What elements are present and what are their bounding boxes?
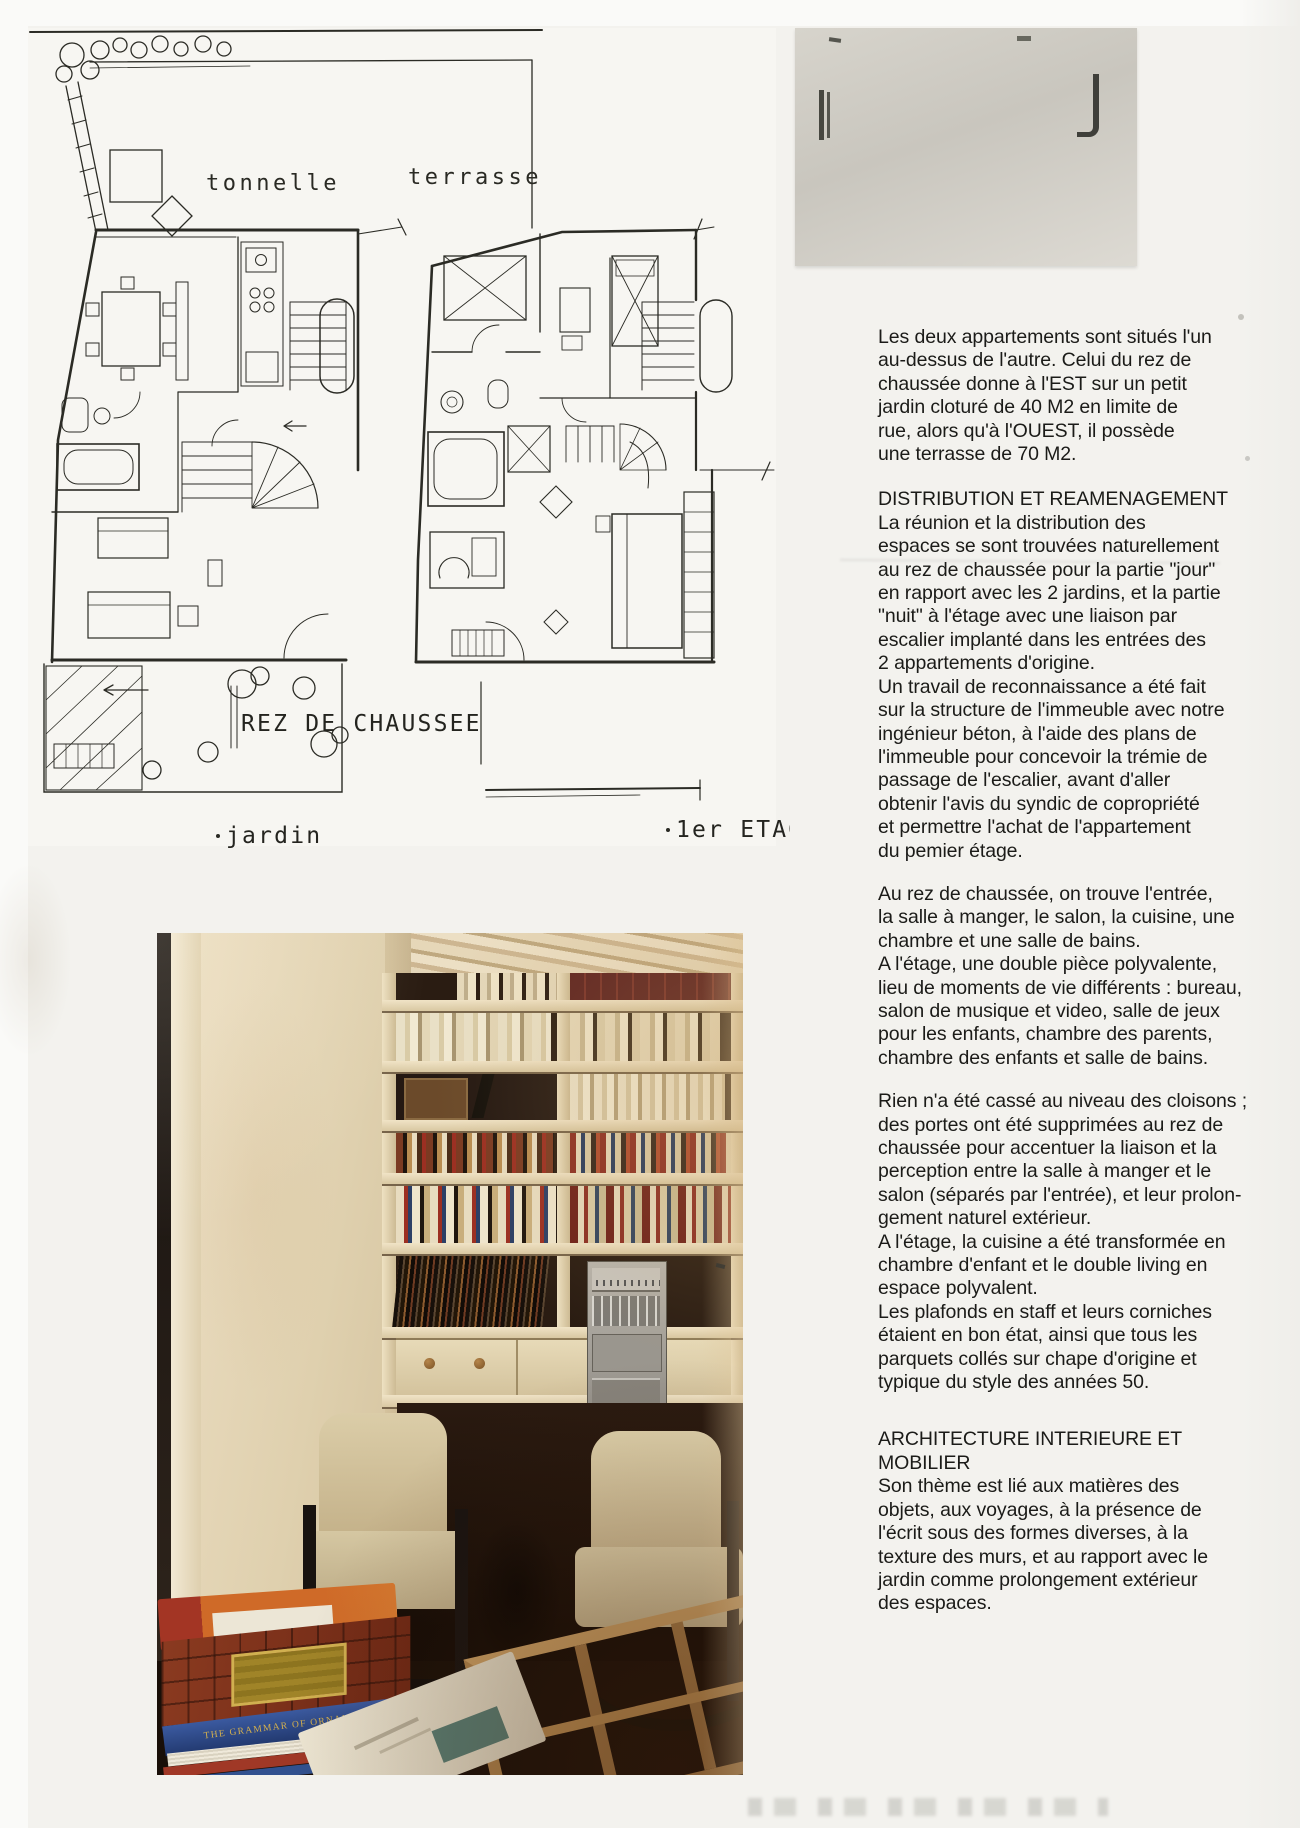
- ink-dot: [216, 834, 220, 838]
- article-text-column: Les deux appartements sont situés l'un a…: [878, 326, 1278, 1616]
- books-row: [396, 1011, 551, 1061]
- door-frame: [171, 933, 204, 1678]
- shelf-stile-right: [731, 973, 743, 1407]
- cupboard-seam: [516, 1340, 518, 1397]
- cupboard-knob: [424, 1358, 435, 1369]
- ink-dot: [666, 828, 670, 832]
- floor-plan-drawing: tonnelle terrasse REZ DE CHAUSSEE jardin…: [0, 0, 790, 860]
- article-section: Au rez de chaussée, on trouve l'entrée, …: [878, 883, 1278, 1070]
- bookshelf: [382, 973, 743, 1407]
- books-row: [570, 1184, 731, 1243]
- section-body: Les deux appartements sont situés l'un a…: [878, 326, 1278, 466]
- sofa: [98, 518, 168, 558]
- label-tonnelle: tonnelle: [206, 171, 340, 196]
- armchair-backrest: [591, 1431, 721, 1559]
- interior-photo: THE GRAMMAR OF ORNAMENT: [157, 933, 743, 1775]
- ground-floor-plan: [44, 36, 532, 792]
- shelf-board: [382, 1243, 743, 1256]
- section-body: Son thème est lié aux matières des objet…: [878, 1475, 1278, 1615]
- record-albums: [392, 1254, 550, 1327]
- article-section: Rien n'a été cassé au niveau des cloison…: [878, 1090, 1278, 1394]
- armchair-backrest: [319, 1413, 447, 1543]
- books-row: [570, 1011, 720, 1061]
- shelf-board: [382, 1120, 743, 1133]
- shelf-board: [382, 1173, 743, 1186]
- article-section: DISTRIBUTION ET REAMENAGEMENT La réunion…: [878, 488, 1278, 863]
- bed: [612, 514, 682, 648]
- dining-table: [102, 292, 160, 366]
- section-heading: DISTRIBUTION ET REAMENAGEMENT: [878, 488, 1278, 511]
- portfolio-box: [404, 1078, 468, 1120]
- ink-mark: [1017, 36, 1031, 41]
- ink-mark: [827, 92, 830, 138]
- stereo-eq: [592, 1296, 660, 1326]
- books-row: [570, 1072, 725, 1120]
- stereo-tuner: [592, 1268, 660, 1292]
- article-section: ARCHITECTURE INTERIEURE ET MOBILIER Son …: [878, 1428, 1278, 1615]
- books-row: [570, 1131, 731, 1173]
- gold-center-panel: [231, 1642, 346, 1706]
- underlying-page-corner: [795, 28, 1137, 266]
- label-terrasse: terrasse: [408, 165, 542, 190]
- scan-artifact: [748, 1798, 1108, 1816]
- section-body: Rien n'a été cassé au niveau des cloison…: [878, 1090, 1278, 1394]
- tonnelle-table: [110, 150, 162, 202]
- label-jardin: jardin: [226, 823, 322, 849]
- article-section: Les deux appartements sont situés l'un a…: [878, 326, 1278, 466]
- bathtub: [57, 444, 139, 490]
- ink-mark: [819, 90, 824, 140]
- cupboard-knob: [474, 1358, 485, 1369]
- books-row: [396, 1131, 554, 1173]
- scanned-page: tonnelle terrasse REZ DE CHAUSSEE jardin…: [0, 0, 1300, 1828]
- book-image: [432, 1706, 510, 1763]
- label-ground-floor: REZ DE CHAUSSEE: [241, 711, 482, 737]
- book-title-line: [354, 1717, 419, 1750]
- shelf-stile-left: [382, 973, 396, 1407]
- books-row: [457, 973, 557, 1000]
- label-first-floor: 1er ETAGE: [676, 817, 790, 843]
- section-body: Au rez de chaussée, on trouve l'entrée, …: [878, 883, 1278, 1070]
- stereo-cassette-deck: [592, 1334, 662, 1372]
- cupboard: [396, 1338, 731, 1397]
- shelf-board: [382, 1061, 743, 1074]
- section-body: La réunion et la distribution des espace…: [878, 512, 1278, 863]
- desk: [430, 532, 504, 588]
- shelf-board: [382, 1000, 743, 1013]
- ink-mark: [1077, 74, 1099, 137]
- section-heading: ARCHITECTURE INTERIEURE ET MOBILIER: [878, 1428, 1278, 1475]
- lattice-bar: [574, 1644, 619, 1775]
- ink-mark: [829, 37, 841, 43]
- books-row: [570, 973, 731, 1000]
- books-row: [396, 1184, 557, 1243]
